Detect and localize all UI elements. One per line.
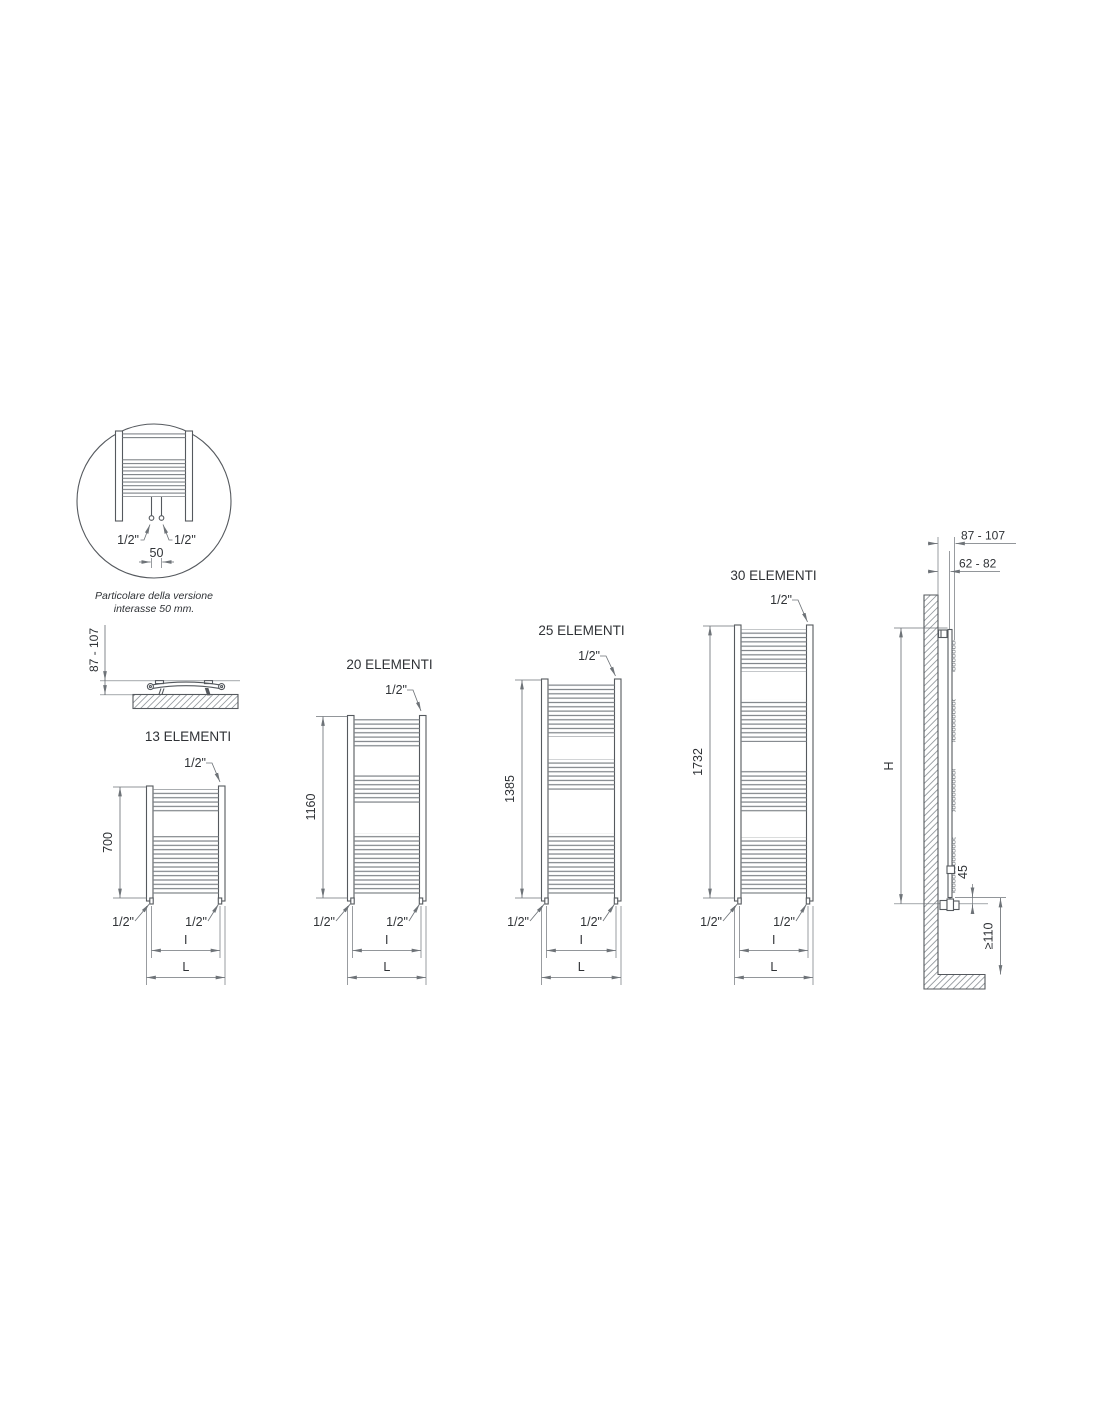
model25-left-collector [542, 679, 549, 901]
model20-bottom-left-inlet-label: 1/2" [313, 915, 335, 929]
model13-width-label: L [182, 960, 189, 974]
model13-tube-group-2 [153, 836, 219, 896]
model25-tube-group-2 [548, 759, 615, 791]
model30-tube-group-4 [741, 837, 807, 896]
detail-spacing-label: 50 [150, 546, 164, 560]
model30-height-label: 1732 [691, 748, 705, 776]
model13-bottom-stub-right [218, 898, 221, 904]
model25-title: 25 ELEMENTI [538, 623, 624, 638]
model20-height-label: 1160 [304, 794, 318, 821]
model13-top-inlet-label: 1/2" [184, 756, 206, 770]
technical-drawing-page: 1/2" 1/2" 50 Particolare della versione … [0, 0, 1100, 1422]
model20-left-collector [348, 716, 355, 902]
side-valve-body-right [954, 901, 960, 910]
model20-bottom-right-inlet-label: 1/2" [386, 915, 408, 929]
model30-tube-group-1 [741, 629, 807, 672]
model30-tube-group-2 [741, 699, 807, 742]
model13-interaxis-label: I [184, 933, 187, 947]
side-wall-bracket-bottom [947, 866, 955, 874]
model30-bottom-left-inlet-label: 1/2" [700, 915, 722, 929]
plan-wall-distance-label: 87 - 107 [87, 628, 101, 672]
detail-valve-left [149, 516, 154, 521]
side-valve-body-left [940, 901, 947, 910]
model20-interaxis-label: I [385, 933, 388, 947]
model13-bottom-right-inlet-label: 1/2" [185, 915, 207, 929]
model13-tube-group-1 [153, 789, 219, 812]
side-tube-bumps-3 [952, 769, 956, 812]
model20-top-inlet-label: 1/2" [385, 683, 407, 697]
model20-right-collector [420, 716, 427, 902]
model30-bottom-stub-right [806, 898, 809, 904]
model20-bottom-stub-right [419, 898, 422, 904]
model25-bottom-stub-left [545, 898, 548, 904]
model13-title: 13 ELEMENTI [145, 729, 231, 744]
model20-bottom-stub-left [351, 898, 354, 904]
model20-tube-group-1 [354, 719, 420, 748]
model25-tube-group-3 [548, 833, 615, 896]
side-wall-bracket-top [939, 630, 948, 638]
side-tube-bumps-4 [952, 837, 956, 893]
side-valve-body-center [947, 899, 954, 911]
side-wall-to-front-label: 87 - 107 [961, 529, 1005, 543]
detail-left-collector [116, 431, 123, 521]
model30-title: 30 ELEMENTI [730, 568, 816, 583]
plan-collector-cap-left [147, 684, 153, 690]
model25-height-label: 1385 [503, 775, 517, 803]
detail-caption-line1: Particolare della versione [95, 590, 213, 602]
model30-interaxis-label: I [772, 933, 775, 947]
model13-right-collector [219, 786, 226, 901]
detail-right-collector [186, 431, 193, 521]
model25-bottom-left-inlet-label: 1/2" [507, 915, 529, 929]
model30-tube-group-3 [741, 769, 807, 812]
side-wall-to-axis-label: 62 - 82 [959, 557, 997, 571]
model30-left-collector [735, 625, 742, 901]
model25-interaxis-label: I [579, 933, 582, 947]
plan-wall-section [133, 695, 238, 709]
plan-collector-cap-right [219, 684, 225, 690]
model20-width-label: L [383, 960, 390, 974]
model30-right-collector [807, 625, 814, 901]
model13-bottom-stub-left [150, 898, 153, 904]
model13-left-collector [147, 786, 154, 901]
model30-top-inlet-label: 1/2" [770, 593, 792, 607]
detail-tube-group-top [123, 431, 186, 439]
model25-bottom-right-inlet-label: 1/2" [580, 915, 602, 929]
detail-inlet-left-label: 1/2" [117, 533, 139, 547]
model20-tube-group-2 [354, 774, 420, 805]
model30-width-label: L [770, 960, 777, 974]
model25-tube-group-1 [548, 683, 615, 737]
model20-title: 20 ELEMENTI [346, 657, 432, 672]
model25-right-collector [615, 679, 622, 901]
model13-height-label: 700 [101, 832, 115, 853]
detail-valve-right [159, 516, 164, 521]
side-collector-tube [948, 630, 952, 898]
model30-bottom-stub-left [738, 898, 741, 904]
model25-top-inlet-label: 1/2" [578, 649, 600, 663]
side-valve-offset-label: 45 [956, 865, 970, 879]
side-height-label: H [882, 761, 896, 770]
model20-tube-group-3 [354, 833, 420, 896]
side-tube-bumps-2 [952, 699, 956, 742]
model30-bottom-right-inlet-label: 1/2" [773, 915, 795, 929]
radiator-dimension-drawing: 1/2" 1/2" 50 Particolare della versione … [0, 0, 1100, 1422]
detail-inlet-right-label: 1/2" [174, 533, 196, 547]
side-floor-clearance-label: ≥110 [982, 923, 996, 950]
detail-caption-line2: interasse 50 mm. [114, 603, 195, 615]
detail-tube-group-main [123, 457, 186, 497]
side-tube-bumps-1 [952, 640, 956, 672]
model25-width-label: L [578, 960, 585, 974]
model25-bottom-stub-right [614, 898, 617, 904]
model13-bottom-left-inlet-label: 1/2" [112, 915, 134, 929]
